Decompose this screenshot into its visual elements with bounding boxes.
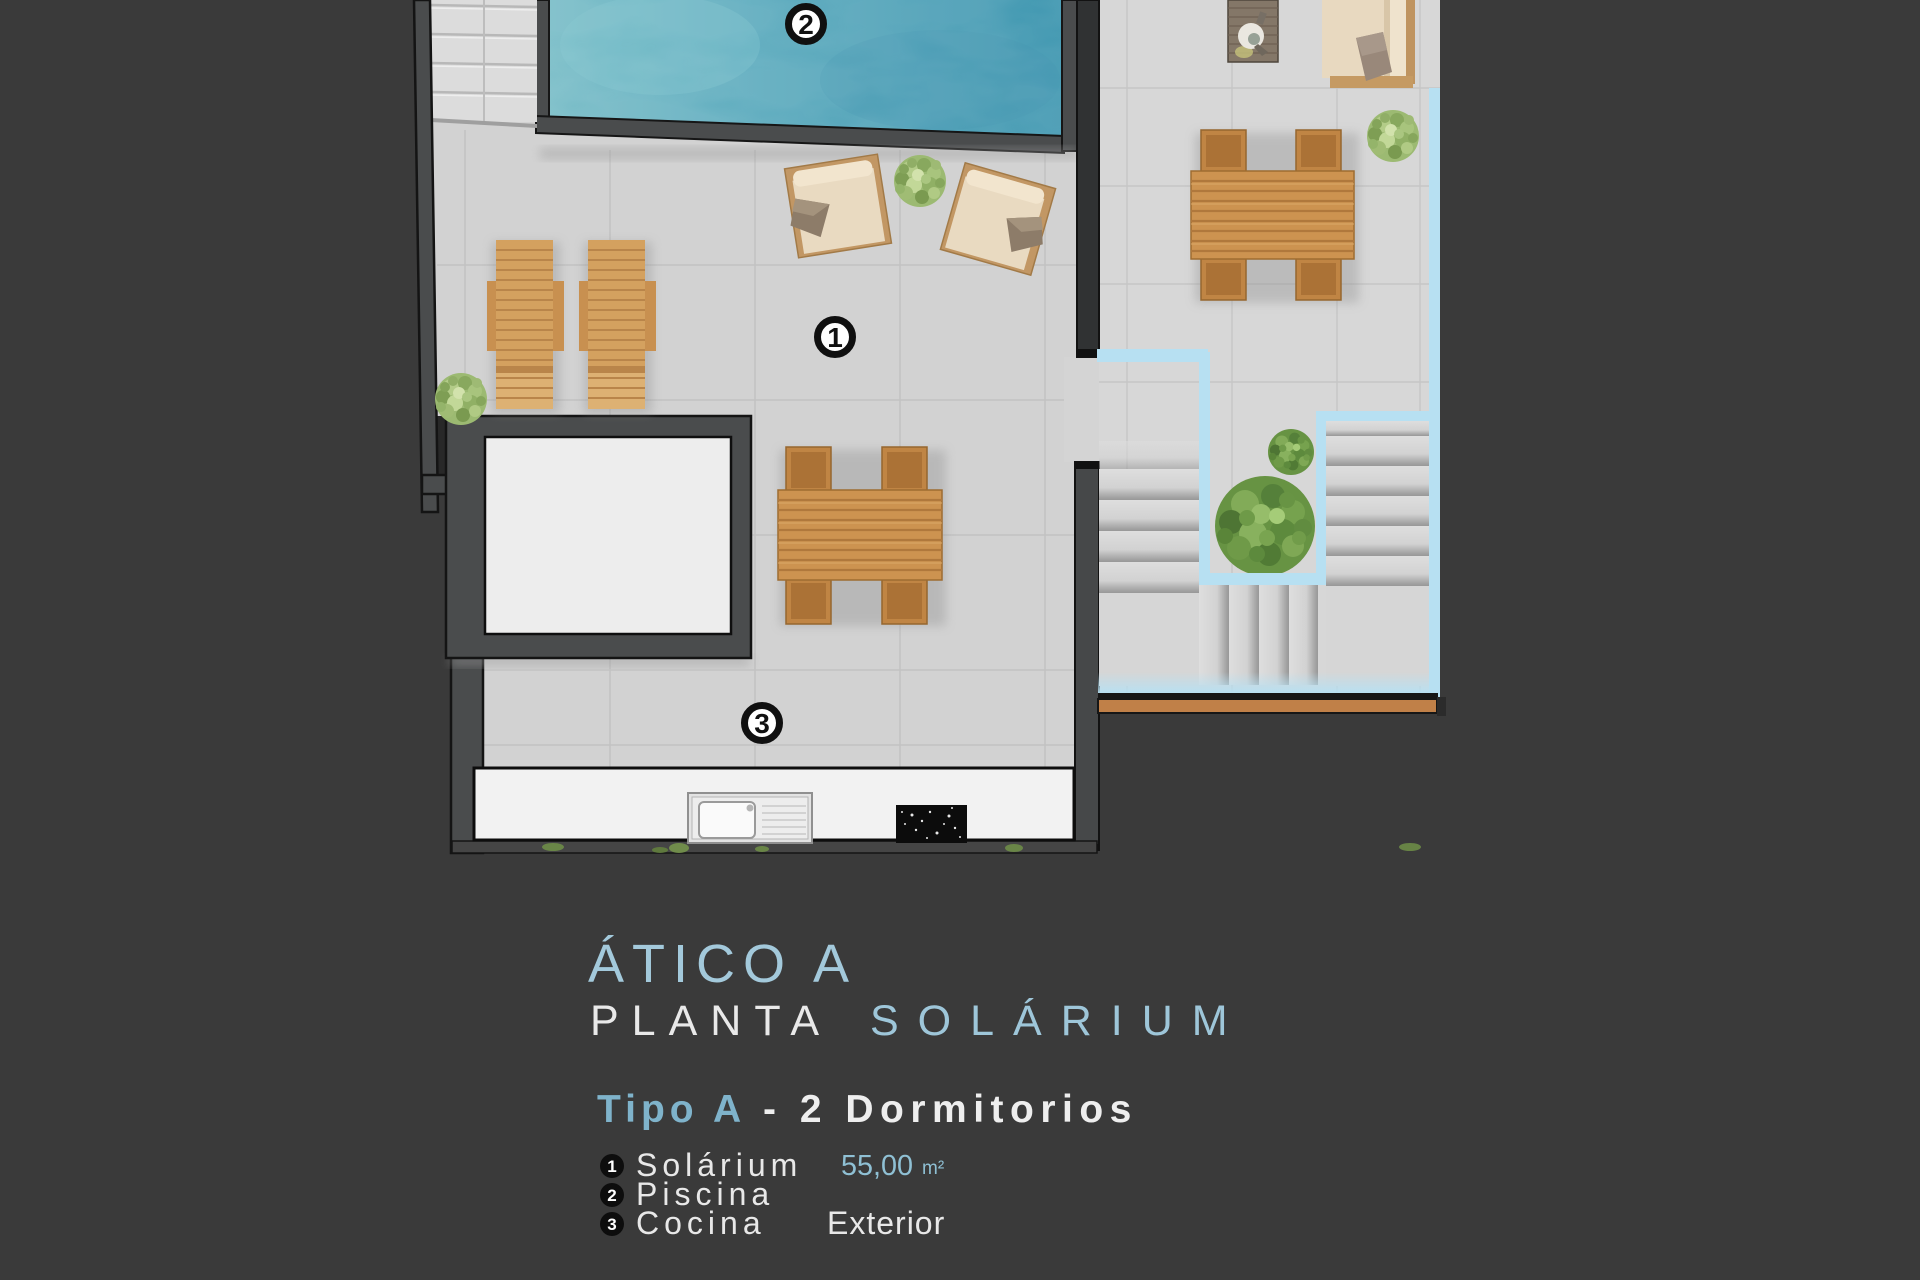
svg-text:PLANTA: PLANTA xyxy=(590,997,832,1045)
svg-text:1: 1 xyxy=(827,322,843,353)
svg-text:2: 2 xyxy=(798,9,814,40)
svg-text:3: 3 xyxy=(754,708,770,739)
svg-text:2: 2 xyxy=(607,1186,616,1205)
svg-text:- 2 Dormitorios: - 2 Dormitorios xyxy=(763,1088,1138,1131)
svg-text:55,00: 55,00 xyxy=(841,1150,913,1182)
svg-text:Exterior: Exterior xyxy=(827,1205,945,1241)
svg-text:Tipo A: Tipo A xyxy=(597,1088,746,1131)
svg-text:SOLÁRIUM: SOLÁRIUM xyxy=(870,997,1247,1045)
svg-text:Cocina: Cocina xyxy=(636,1205,766,1241)
svg-text:1: 1 xyxy=(607,1157,616,1176)
svg-text:ÁTICO A: ÁTICO A xyxy=(588,934,857,994)
svg-text:m²: m² xyxy=(922,1158,944,1179)
svg-text:3: 3 xyxy=(607,1215,616,1234)
